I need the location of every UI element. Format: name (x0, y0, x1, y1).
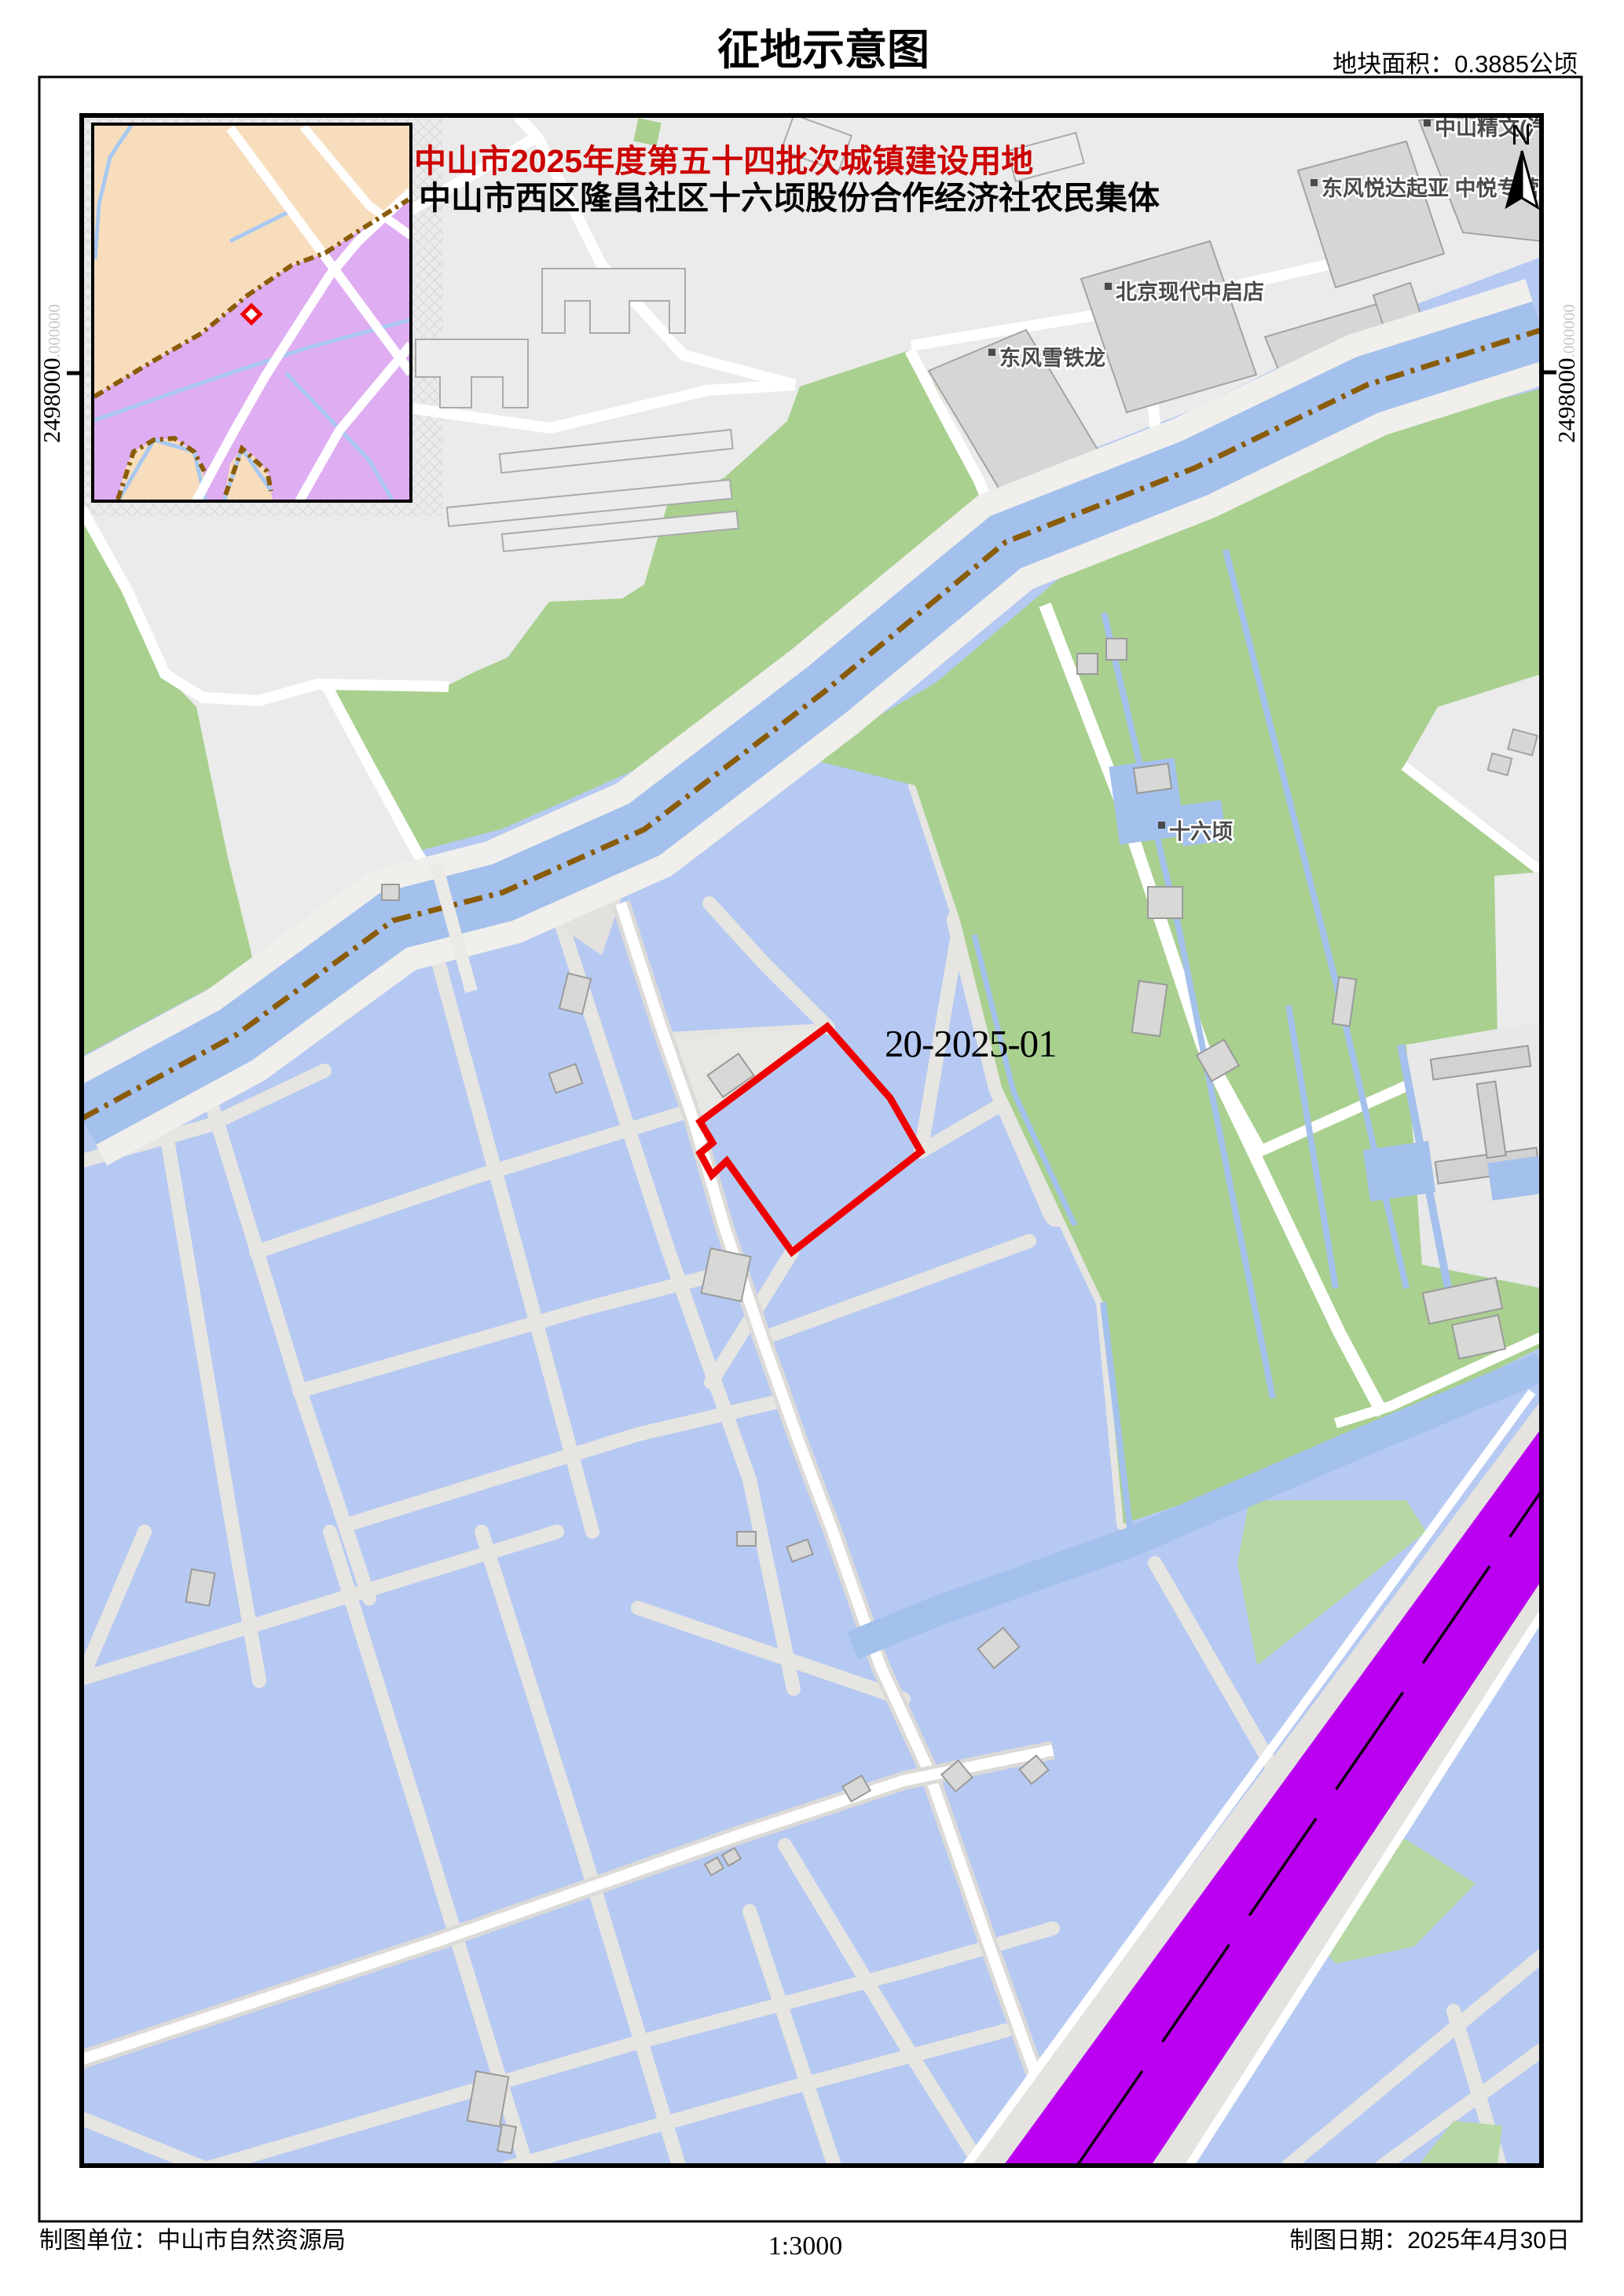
svg-text:制图单位：中山市自然资源局: 制图单位：中山市自然资源局 (39, 2228, 346, 2254)
svg-text:地块面积：0.3885公顷: 地块面积：0.3885公顷 (1333, 50, 1578, 78)
svg-text:1:3000: 1:3000 (768, 2232, 842, 2261)
svg-text:N: N (1511, 119, 1531, 151)
svg-text:北京现代中启店: 北京现代中启店 (1116, 280, 1264, 304)
svg-text:20-2025-01: 20-2025-01 (885, 1022, 1057, 1065)
svg-text:东风雪铁龙: 东风雪铁龙 (999, 346, 1105, 370)
svg-text:十六顷: 十六顷 (1169, 820, 1233, 844)
svg-text:征地示意图: 征地示意图 (717, 27, 929, 74)
svg-text:中山市2025年度第五十四批次城镇建设用地: 中山市2025年度第五十四批次城镇建设用地 (414, 143, 1033, 179)
svg-text:制图日期：2025年4月30日: 制图日期：2025年4月30日 (1289, 2228, 1570, 2254)
svg-text:中山市西区隆昌社区十六顷股份合作经济社农民集体: 中山市西区隆昌社区十六顷股份合作经济社农民集体 (419, 180, 1160, 216)
